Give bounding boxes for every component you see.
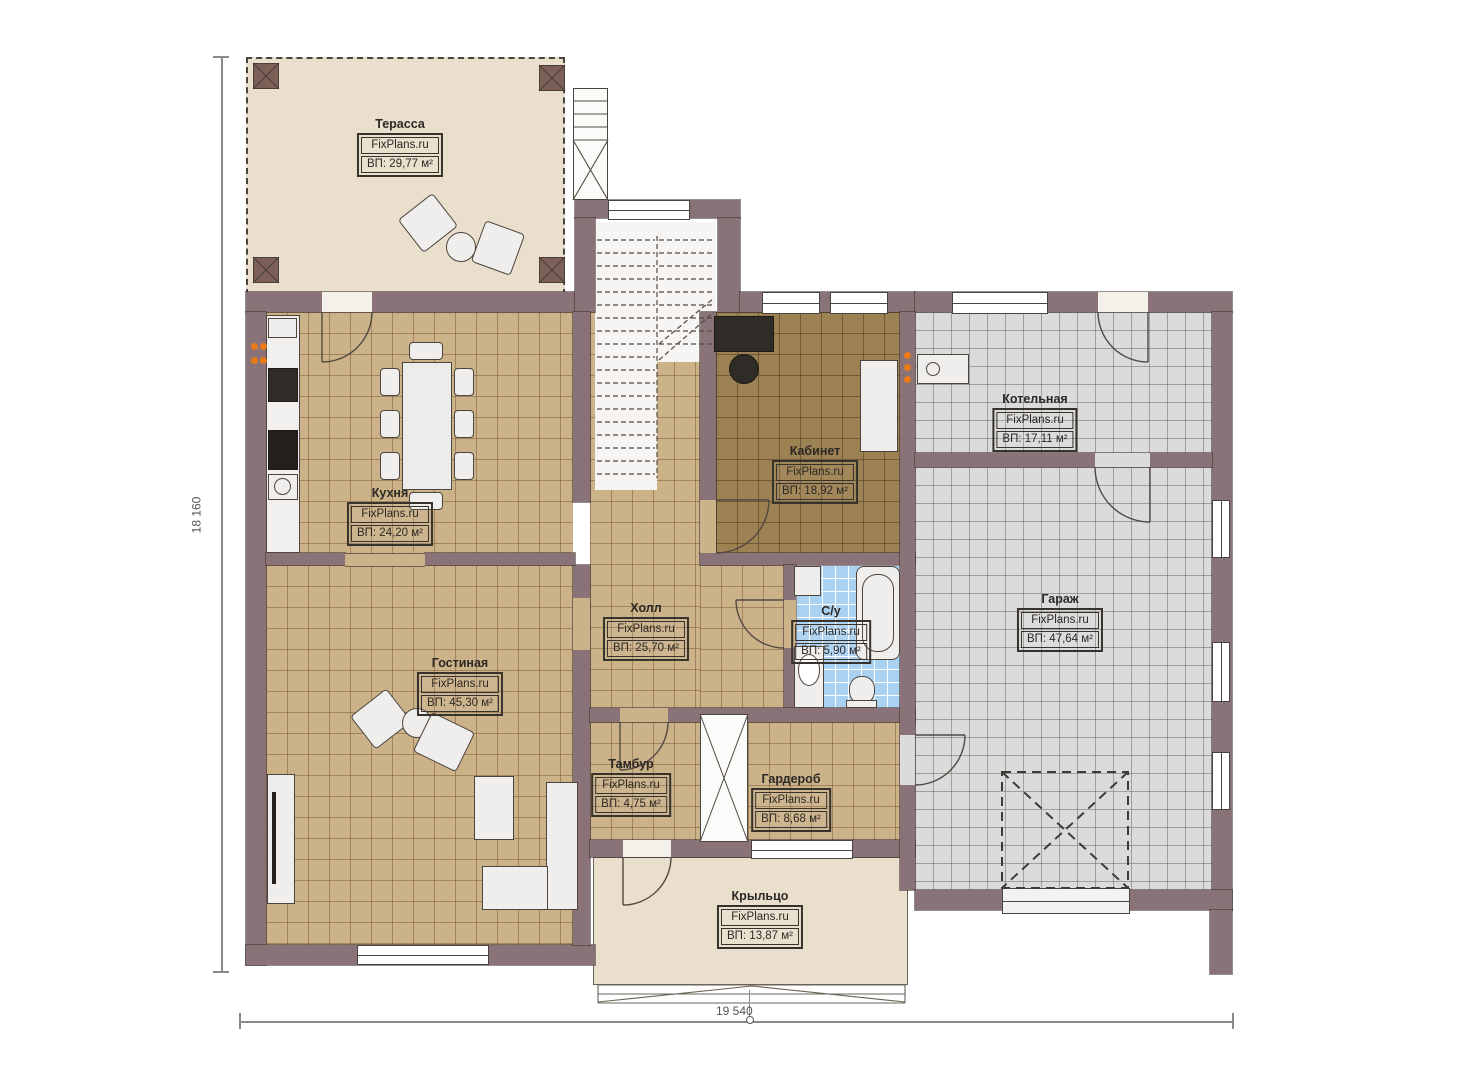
door-opening-house-garage — [900, 735, 915, 785]
microwave — [268, 318, 297, 338]
room-info-box: FixPlans.ru ВП: 45,30 м² — [417, 672, 503, 716]
room-info-box: FixPlans.ru ВП: 24,20 м² — [347, 502, 433, 546]
study-desk — [714, 316, 774, 352]
dim-tick-left-bottom — [213, 971, 229, 973]
window-study-1 — [762, 292, 820, 314]
tv-screen — [272, 792, 276, 884]
window-garage-right-2 — [1212, 642, 1230, 702]
radiator-dot-kitchen-3 — [251, 357, 258, 364]
wall-study-south — [700, 553, 915, 565]
terrace-post-bl — [253, 257, 279, 283]
room-area: ВП: 24,20 м² — [351, 525, 429, 542]
label-terrace: Терасса FixPlans.ru ВП: 29,77 м² — [357, 117, 443, 177]
window-garage-right-3 — [1212, 752, 1230, 810]
wall-garage-west — [900, 312, 915, 890]
room-name: Гардероб — [751, 772, 831, 786]
room-info-box: FixPlans.ru ВП: 25,70 м² — [603, 617, 689, 661]
wall-left — [246, 312, 266, 965]
dim-marker-center — [746, 1016, 754, 1024]
room-area: ВП: 8,68 м² — [755, 811, 827, 828]
boiler-unit — [917, 354, 969, 384]
room-info-box: FixPlans.ru ВП: 5,90 м² — [791, 620, 871, 664]
room-area: ВП: 45,30 м² — [421, 695, 499, 712]
dining-chair-l3 — [380, 452, 400, 480]
sofa-back — [546, 782, 578, 910]
room-info-box: FixPlans.ru ВП: 8,68 м² — [751, 788, 831, 832]
label-bathroom: С/у FixPlans.ru ВП: 5,90 м² — [791, 604, 871, 664]
dining-chair-top — [409, 342, 443, 360]
terrace-post-tr — [539, 65, 565, 91]
boiler-burner — [926, 362, 940, 376]
floor-plan-canvas: Терасса FixPlans.ru ВП: 29,77 м² Кухня F… — [0, 0, 1473, 1080]
room-name: Крыльцо — [717, 889, 803, 903]
label-living: Гостиная FixPlans.ru ВП: 45,30 м² — [417, 656, 503, 716]
closet-unit — [700, 714, 748, 842]
garage-door-opening — [1002, 888, 1130, 914]
wall-top-left — [246, 292, 575, 312]
room-hall-floor-2 — [700, 565, 784, 708]
watermark: FixPlans.ru — [1021, 612, 1099, 629]
door-opening-study — [700, 500, 716, 553]
wall-stairbay-left — [575, 218, 595, 312]
window-stairbay — [608, 200, 690, 220]
room-garage-floor — [915, 467, 1212, 890]
label-study: Кабинет FixPlans.ru ВП: 18,92 м² — [772, 444, 858, 504]
radiator-dot-kitchen-2 — [260, 343, 267, 350]
door-opening-entry — [623, 840, 671, 857]
radiator-dot-kitchen-4 — [260, 357, 267, 364]
terrace-post-tl — [253, 63, 279, 89]
fridge — [268, 368, 298, 402]
wall-kitchen-living-a — [266, 553, 345, 565]
dim-label-height: 18 160 — [189, 497, 203, 534]
wall-boiler-garage — [915, 453, 1212, 467]
label-boiler: Котельная FixPlans.ru ВП: 17,11 м² — [992, 392, 1077, 452]
watermark: FixPlans.ru — [755, 792, 827, 809]
room-name: С/у — [791, 604, 871, 618]
watermark: FixPlans.ru — [996, 412, 1073, 429]
label-hall: Холл FixPlans.ru ВП: 25,70 м² — [603, 601, 689, 661]
room-info-box: FixPlans.ru ВП: 13,87 м² — [717, 905, 803, 949]
door-opening-vestibule — [620, 708, 668, 722]
room-name: Кабинет — [772, 444, 858, 458]
room-info-box: FixPlans.ru ВП: 4,75 м² — [591, 773, 671, 817]
wall-kitchen-living-b — [425, 553, 575, 565]
study-chair — [729, 354, 759, 384]
toilet-tank — [846, 700, 877, 708]
watermark: FixPlans.ru — [607, 621, 685, 638]
room-area: ВП: 47,64 м² — [1021, 631, 1099, 648]
stairwell-floor-lower — [595, 362, 657, 490]
wall-stairbay-right — [718, 218, 740, 312]
room-name: Кухня — [347, 486, 433, 500]
wall-kitchen-east — [573, 312, 590, 502]
washing-machine — [794, 566, 821, 596]
room-info-box: FixPlans.ru ВП: 29,77 м² — [357, 133, 443, 177]
dim-tick-bottom-right — [1232, 1013, 1234, 1029]
porch-steps — [598, 985, 905, 1003]
dining-chair-r3 — [454, 452, 474, 480]
exterior-ladder — [573, 88, 608, 200]
room-name: Гостиная — [417, 656, 503, 670]
room-area: ВП: 17,11 м² — [996, 431, 1073, 448]
dining-chair-l2 — [380, 410, 400, 438]
pass-through-kitchen-living — [345, 553, 425, 567]
label-vestibule: Тамбур FixPlans.ru ВП: 4,75 м² — [591, 757, 671, 817]
label-garage: Гараж FixPlans.ru ВП: 47,64 м² — [1017, 592, 1103, 652]
room-name: Терасса — [357, 117, 443, 131]
radiator-dot-boiler-2 — [904, 364, 911, 371]
room-name: Котельная — [992, 392, 1077, 406]
window-living-south — [357, 945, 489, 965]
dim-tick-bottom-left — [239, 1013, 241, 1029]
radiator-dot-boiler-3 — [904, 376, 911, 383]
watermark: FixPlans.ru — [795, 624, 867, 641]
room-area: ВП: 25,70 м² — [607, 640, 685, 657]
dim-line-left — [221, 57, 223, 972]
room-info-box: FixPlans.ru ВП: 47,64 м² — [1017, 608, 1103, 652]
watermark: FixPlans.ru — [351, 506, 429, 523]
sofa-seat — [482, 866, 548, 910]
dining-chair-l1 — [380, 368, 400, 396]
window-study-2 — [830, 292, 888, 314]
wall-right — [1212, 312, 1232, 910]
room-area: ВП: 29,77 м² — [361, 156, 439, 173]
window-boiler — [952, 292, 1048, 314]
door-opening-terrace-kitchen — [322, 292, 372, 312]
stairwell-floor-upper — [595, 222, 716, 362]
stove — [268, 430, 298, 470]
watermark: FixPlans.ru — [421, 676, 499, 693]
dining-chair-r1 — [454, 368, 474, 396]
kitchen-sink-basin — [274, 478, 291, 495]
window-garage-right-1 — [1212, 500, 1230, 558]
radiator-dot-kitchen-1 — [251, 343, 258, 350]
door-opening-boiler — [1098, 292, 1148, 312]
room-info-box: FixPlans.ru ВП: 18,92 м² — [772, 460, 858, 504]
room-info-box: FixPlans.ru ВП: 17,11 м² — [992, 408, 1077, 452]
dining-table — [402, 362, 452, 490]
coffee-table — [474, 776, 514, 840]
room-area: ВП: 18,92 м² — [776, 483, 854, 500]
dim-tick-left-top — [213, 56, 229, 58]
dining-chair-r2 — [454, 410, 474, 438]
window-wardrobe-porch — [751, 840, 853, 859]
label-porch: Крыльцо FixPlans.ru ВП: 13,87 м² — [717, 889, 803, 949]
radiator-dot-boiler-1 — [904, 352, 911, 359]
door-opening-hall-living — [573, 598, 590, 650]
wall-stub-pillar — [1210, 910, 1232, 974]
study-sofa — [860, 360, 898, 452]
label-kitchen: Кухня FixPlans.ru ВП: 24,20 м² — [347, 486, 433, 546]
watermark: FixPlans.ru — [361, 137, 439, 154]
watermark: FixPlans.ru — [776, 464, 854, 481]
watermark: FixPlans.ru — [595, 777, 667, 794]
label-wardrobe: Гардероб FixPlans.ru ВП: 8,68 м² — [751, 772, 831, 832]
terrace-post-br — [539, 257, 565, 283]
room-name: Тамбур — [591, 757, 671, 771]
room-name: Холл — [603, 601, 689, 615]
room-name: Гараж — [1017, 592, 1103, 606]
dim-line-bottom — [240, 1021, 1233, 1023]
room-area: ВП: 5,90 м² — [795, 643, 867, 660]
door-opening-boiler-garage — [1095, 453, 1150, 467]
room-area: ВП: 13,87 м² — [721, 928, 799, 945]
watermark: FixPlans.ru — [721, 909, 799, 926]
room-area: ВП: 4,75 м² — [595, 796, 667, 813]
